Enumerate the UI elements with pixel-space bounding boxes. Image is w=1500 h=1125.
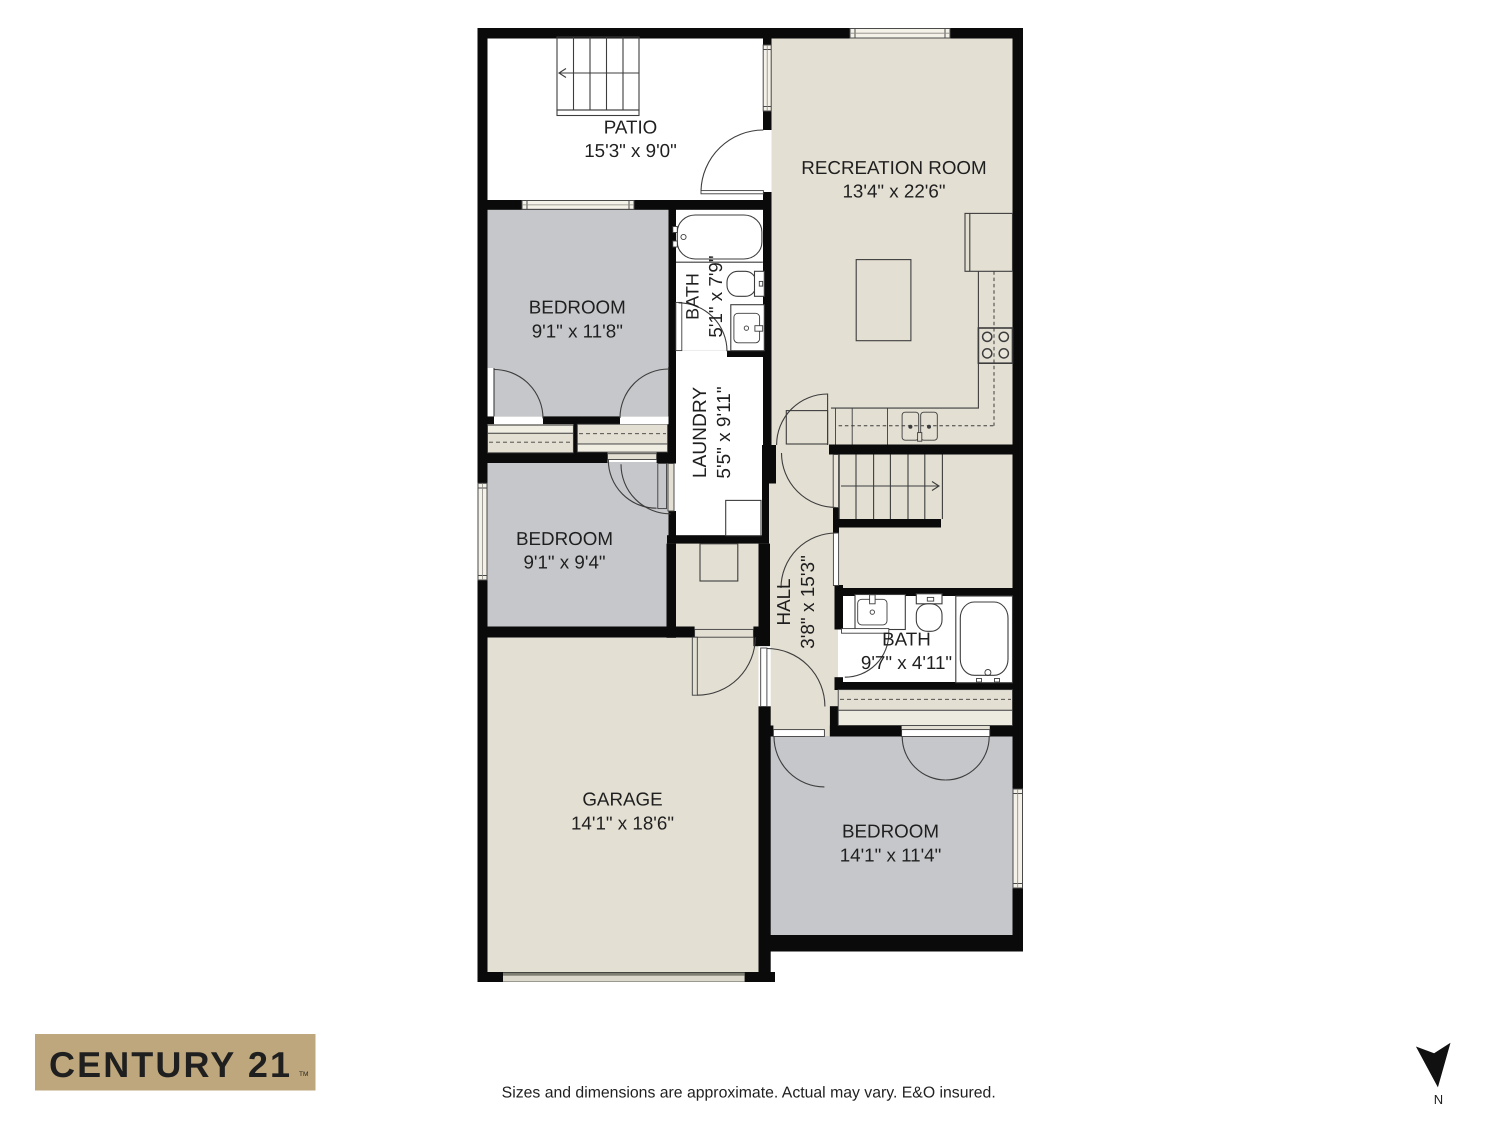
svg-text:HALL: HALL <box>773 579 794 626</box>
svg-text:BEDROOM: BEDROOM <box>516 528 613 549</box>
svg-text:TM: TM <box>299 1071 308 1078</box>
svg-text:14'1" x 11'4": 14'1" x 11'4" <box>840 845 942 866</box>
svg-text:BEDROOM: BEDROOM <box>842 821 939 842</box>
svg-text:GARAGE: GARAGE <box>582 789 662 810</box>
svg-text:N: N <box>1434 1092 1443 1107</box>
svg-text:Sizes and dimensions are appro: Sizes and dimensions are approximate. Ac… <box>502 1085 996 1102</box>
svg-text:PATIO: PATIO <box>604 117 658 138</box>
svg-text:9'7" x 4'11": 9'7" x 4'11" <box>861 652 952 673</box>
svg-text:3'8" x 15'3": 3'8" x 15'3" <box>798 555 819 649</box>
svg-text:CENTURY 21: CENTURY 21 <box>49 1044 292 1085</box>
svg-text:BATH: BATH <box>683 273 703 320</box>
svg-text:BATH: BATH <box>882 629 931 650</box>
svg-text:5'1" x 7'9": 5'1" x 7'9" <box>705 255 726 337</box>
svg-text:LAUNDRY: LAUNDRY <box>690 387 711 479</box>
svg-text:14'1" x 18'6": 14'1" x 18'6" <box>571 813 674 834</box>
svg-text:RECREATION ROOM: RECREATION ROOM <box>801 157 986 178</box>
svg-text:5'5" x 9'11": 5'5" x 9'11" <box>714 386 735 478</box>
svg-text:13'4" x 22'6": 13'4" x 22'6" <box>842 181 945 202</box>
svg-text:9'1" x 11'8": 9'1" x 11'8" <box>532 321 623 342</box>
svg-text:9'1" x 9'4": 9'1" x 9'4" <box>523 552 605 573</box>
svg-text:15'3" x 9'0": 15'3" x 9'0" <box>584 140 677 161</box>
svg-text:BEDROOM: BEDROOM <box>529 297 626 318</box>
